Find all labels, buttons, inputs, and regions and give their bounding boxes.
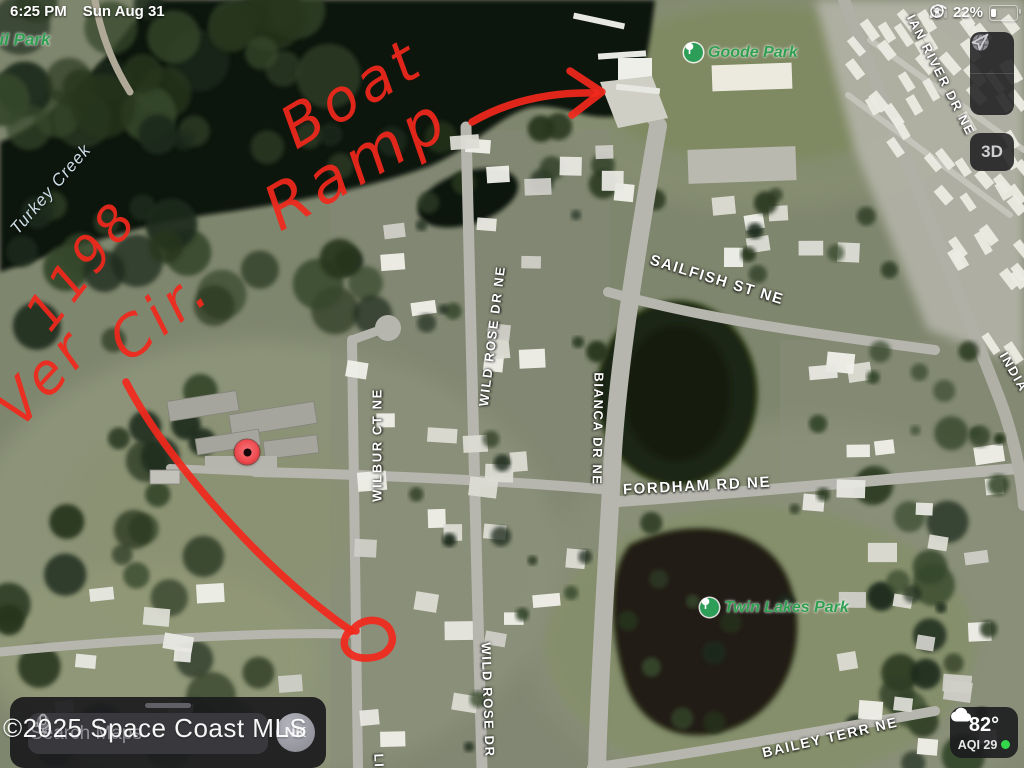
- park-label-text: ail Park: [0, 30, 51, 50]
- weather-widget[interactable]: 82° AQI 29: [950, 707, 1018, 758]
- battery-icon: [989, 5, 1018, 21]
- avatar-initials: NK: [285, 724, 307, 741]
- search-input[interactable]: [28, 723, 268, 745]
- map-terrain: [0, 0, 1024, 768]
- tree-icon: [684, 43, 703, 62]
- aqi-status-dot: [1001, 740, 1010, 749]
- locate-button[interactable]: [970, 74, 1014, 115]
- park-label-goode-park[interactable]: Goode Park: [684, 43, 798, 62]
- satellite-map[interactable]: ail Park Goode Park Twin Lakes Park Turk…: [0, 0, 1024, 768]
- cloud-icon: [950, 707, 972, 722]
- temperature: 82°: [969, 714, 999, 737]
- orientation-lock-icon: [930, 4, 944, 18]
- microphone-icon[interactable]: [28, 713, 58, 735]
- park-label-twin-lakes-park[interactable]: Twin Lakes Park: [700, 598, 849, 617]
- tree-icon: [700, 598, 719, 617]
- status-date: Sun Aug 31: [83, 3, 165, 20]
- status-bar: 6:25 PM Sun Aug 31: [0, 0, 1024, 24]
- sheet-grab-handle[interactable]: [145, 703, 191, 708]
- aqi-value: AQI 29: [958, 738, 998, 752]
- park-label-trail-park[interactable]: ail Park: [0, 30, 51, 50]
- search-field[interactable]: [28, 713, 268, 754]
- account-avatar[interactable]: NK: [276, 713, 315, 752]
- map-controls: 3D: [970, 32, 1014, 171]
- park-label-text: Goode Park: [708, 44, 798, 62]
- battery-percent: 22%: [953, 4, 983, 21]
- locate-arrow-icon: [970, 32, 990, 52]
- map-pin[interactable]: [235, 440, 260, 465]
- bottom-sheet: NK: [10, 697, 326, 768]
- status-time: 6:25 PM: [10, 3, 67, 20]
- 3d-mode-button[interactable]: 3D: [970, 133, 1014, 171]
- 3d-label: 3D: [981, 142, 1003, 162]
- park-label-text: Twin Lakes Park: [724, 599, 849, 617]
